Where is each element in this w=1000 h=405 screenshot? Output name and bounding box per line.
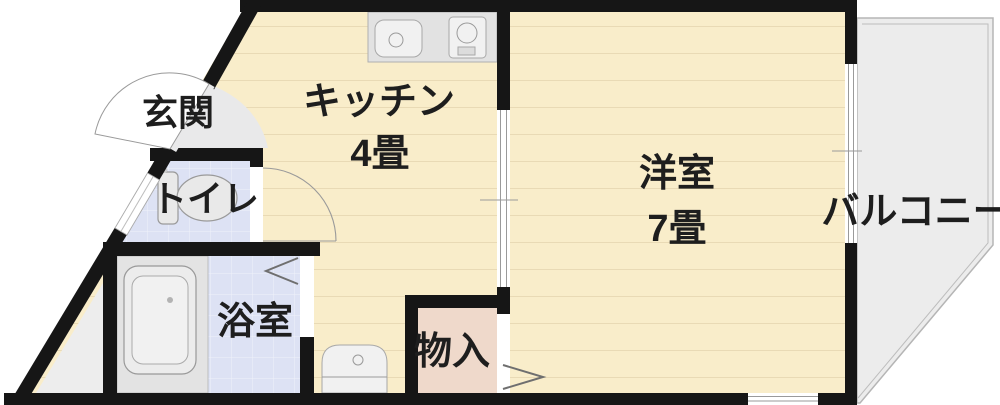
label-kitchen: キッチン <box>303 81 455 123</box>
label-toilet: トイレ <box>151 178 259 219</box>
washbasin-icon <box>322 345 387 393</box>
wall-right-upper <box>845 0 857 64</box>
wall-top <box>240 0 857 12</box>
wall-bathroom-top <box>103 242 320 256</box>
label-storage: 物入 <box>414 331 490 373</box>
kitchen-counter-icon <box>368 12 497 62</box>
bathtub-icon <box>124 266 196 374</box>
kitchen-sink-icon <box>375 20 422 57</box>
wall-bottom-right <box>818 393 857 405</box>
label-kitchen-size: 4畳 <box>350 133 409 175</box>
wall-right-lower <box>845 243 857 405</box>
label-western-room-size: 7畳 <box>647 208 706 250</box>
label-balcony: バルコニー <box>821 191 1000 233</box>
wall-storage-top <box>405 295 510 308</box>
label-genkan: 玄関 <box>142 92 214 133</box>
wall-divider-upper <box>497 12 510 110</box>
bottom-window <box>748 393 818 405</box>
floor-plan: 玄関 キッチン 4畳 洋室 7畳 トイレ 浴室 物入 バルコニー <box>0 0 1000 405</box>
stove-grill-icon <box>458 47 475 55</box>
bathtub-drain-icon <box>167 297 173 303</box>
label-western-room: 洋室 <box>639 152 715 195</box>
label-bathroom: 浴室 <box>217 300 293 343</box>
wall-toilet-corner <box>250 148 263 167</box>
wall-bathroom-right <box>300 337 314 397</box>
